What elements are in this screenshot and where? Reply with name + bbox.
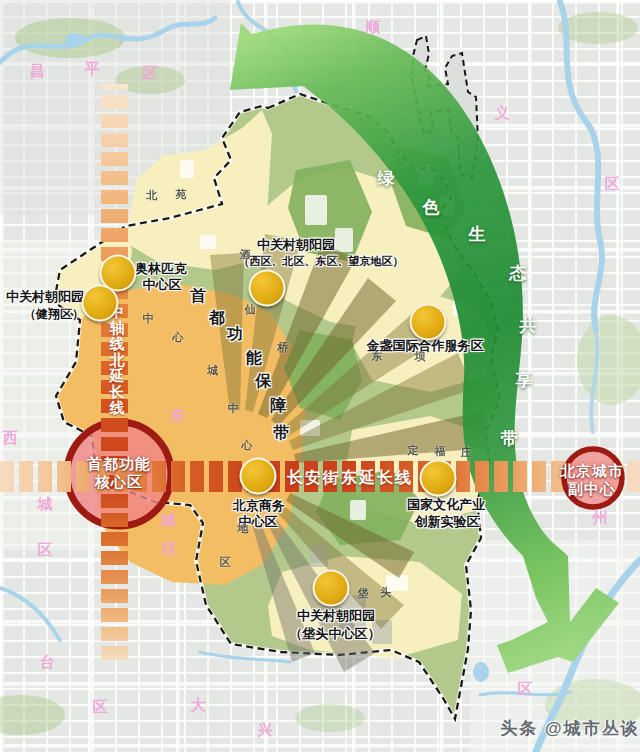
adjacent-district-label-char: 义 [495, 105, 510, 120]
place-name-char: 东 [372, 351, 383, 362]
place-name-char: 福 [435, 446, 446, 457]
support-band-label-char: 保 [255, 373, 271, 389]
node-fatou [313, 570, 350, 607]
green-belt-label-char: 带 [501, 430, 518, 447]
place-name-char: 中 [228, 403, 239, 414]
place-name-char: 桥 [278, 342, 289, 353]
green-belt-label-char: 绿 [378, 170, 395, 187]
place-name-char: 中 [143, 313, 154, 324]
planning-map: 奥林匹克中心区中关村朝阳园（健翔区）中关村朝阳园（西区、北区、东区、望京地区）金… [0, 0, 640, 752]
place-name-char: 城 [208, 365, 219, 376]
label-olympic-line2: 中心区 [143, 278, 182, 291]
adjacent-district-label-char: 区 [93, 699, 108, 714]
adjacent-district-label-char: 平 [85, 61, 100, 76]
north-axis-label-char: 北 [110, 352, 125, 367]
place-name-char: 垡 [358, 588, 369, 599]
green-belt-label-char: 共 [520, 317, 537, 334]
label-core-area-line1: 首都功能 [87, 456, 151, 471]
changan-axis-label: 长安街东延长线 [287, 470, 413, 486]
node-culture-zone [420, 460, 457, 497]
label-jianxiang-line2: （健翔区） [24, 308, 84, 320]
place-name-char: 苑 [176, 189, 187, 200]
north-axis-label-char: 轴 [110, 320, 125, 335]
node-wangjing [249, 270, 286, 307]
adjacent-district-label-char: 区 [163, 541, 178, 556]
north-axis-label-char: 线 [110, 336, 125, 351]
label-fatou-line2: （垡头中心区） [290, 627, 381, 640]
support-band-label-char: 能 [246, 350, 262, 366]
adjacent-district-label-char: 州 [593, 510, 608, 525]
label-fatou-line1: 中关村朝阳园 [297, 609, 375, 622]
place-name-char: 坝 [415, 351, 426, 362]
adjacent-district-label-char: 兴 [258, 722, 273, 737]
north-axis-label-char: 线 [110, 400, 125, 415]
label-overlay: 奥林匹克中心区中关村朝阳园（健翔区）中关村朝阳园（西区、北区、东区、望京地区）金… [0, 0, 640, 752]
adjacent-district-label-char: 区 [143, 65, 158, 80]
green-belt-label-char: 色 [423, 199, 440, 216]
adjacent-district-label-char: 城 [161, 512, 176, 527]
label-culture-line1: 国家文化产业 [407, 498, 485, 511]
adjacent-district-label-char: 顺 [366, 19, 381, 34]
adjacent-district-label-char: 区 [38, 542, 53, 557]
support-band-label-char: 功 [227, 326, 243, 342]
north-axis-label-char: 长 [110, 384, 125, 399]
place-name-char: 地 [238, 523, 249, 534]
label-culture-line2: 创新实验区 [415, 515, 480, 528]
place-name-char: 定 [408, 445, 419, 456]
node-jianxiang [82, 285, 119, 322]
place-name-char: 仙 [245, 304, 256, 315]
adjacent-district-label-char: 大 [191, 697, 206, 712]
adjacent-district-label-char: 台 [40, 654, 55, 669]
support-band-label-char: 带 [273, 425, 289, 441]
label-olympic-line1: 奥林匹克 [135, 262, 187, 275]
label-wangjing-line1: 中关村朝阳园 [257, 238, 335, 251]
place-name-char: 北 [147, 190, 158, 201]
node-jinzhan [410, 304, 447, 341]
label-cbd-line1: 北京商务 [233, 499, 285, 512]
adjacent-district-label-char: 昌 [30, 63, 45, 78]
green-belt-label-char: 享 [516, 372, 533, 389]
place-name-char: 心 [173, 332, 184, 343]
place-name-char: 酒 [240, 249, 251, 260]
place-name-char: 区 [220, 557, 231, 568]
adjacent-district-label-char: 西 [3, 430, 18, 445]
label-wangjing-line2: （西区、北区、东区、望京地区） [239, 256, 404, 267]
place-name-char: 心 [242, 440, 253, 451]
node-cbd [240, 458, 277, 495]
support-band-label-char: 首 [190, 288, 206, 304]
adjacent-district-label-char: 东 [170, 408, 185, 423]
adjacent-district-label-char: 区 [605, 176, 620, 191]
green-belt-label-char: 态 [510, 265, 527, 282]
label-sub-center-line1: 北京城市 [560, 463, 624, 478]
adjacent-district-label-char: 区 [518, 681, 533, 696]
label-sub-center-line2: 副中心 [568, 481, 616, 496]
north-axis-label-char: 延 [110, 368, 125, 383]
green-belt-label-char: 生 [469, 226, 486, 243]
place-name-char: 头 [381, 587, 392, 598]
label-core-area-line2: 核心区 [95, 474, 143, 489]
support-band-label-char: 障 [270, 398, 286, 414]
watermark: 头条 @城市丛谈 [500, 720, 639, 737]
adjacent-district-label-char: 城 [38, 496, 53, 511]
label-jianxiang-line1: 中关村朝阳园 [6, 290, 84, 303]
place-name-char: 庄 [461, 447, 472, 458]
support-band-label-char: 都 [209, 310, 225, 326]
